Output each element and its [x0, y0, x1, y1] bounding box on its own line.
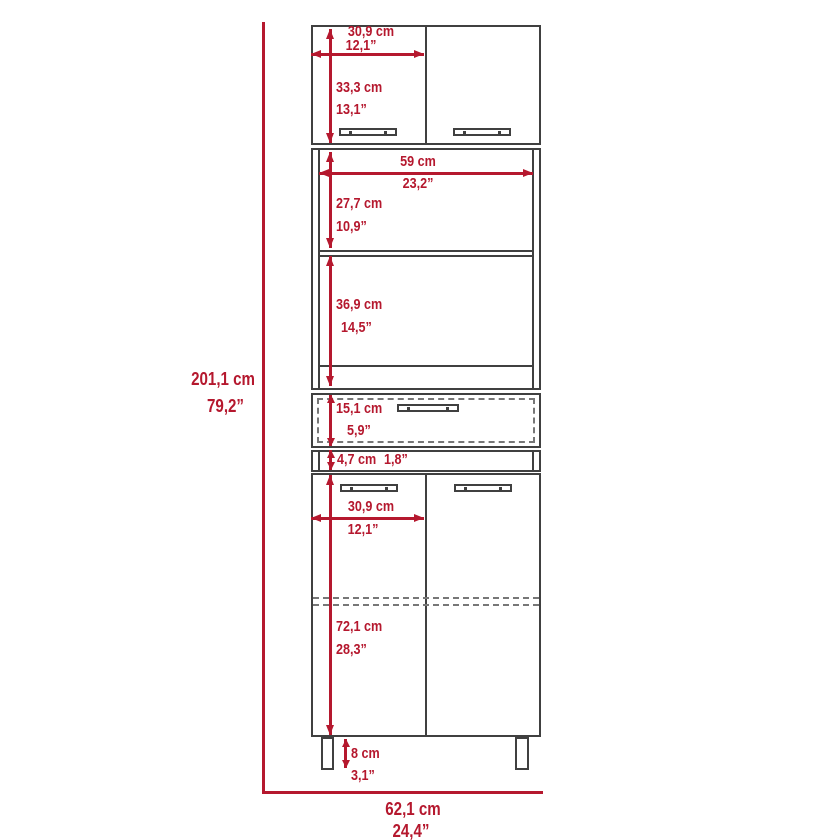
- lower-space-height-arrow: [329, 256, 332, 386]
- hutch-right-panel: [532, 150, 534, 388]
- hutch-shelf: [320, 250, 532, 257]
- leg-height-in: 3,1”: [351, 768, 375, 783]
- upper-space-height-cm: 27,7 cm: [336, 196, 382, 211]
- base-shelf-hidden-line-2: [313, 604, 539, 606]
- spacer-left-panel: [318, 452, 320, 470]
- base-height-arrow: [329, 475, 332, 735]
- spacer-height-arrow: [329, 450, 332, 470]
- overall-height-in: 79,2”: [157, 397, 244, 415]
- overall-height-cm: 201,1 cm: [158, 370, 255, 388]
- overall-width-line: [262, 791, 543, 794]
- upper-space-height-arrow: [329, 152, 332, 248]
- drawer-height-cm: 15,1 cm: [336, 401, 382, 416]
- leg-height-arrow: [344, 739, 347, 768]
- base-height-cm: 72,1 cm: [336, 619, 382, 634]
- base-left-door-handle: [340, 484, 398, 492]
- base-height-in: 28,3”: [336, 642, 367, 657]
- drawer-height-arrow: [329, 395, 332, 446]
- base-door-width-in: 12,1”: [318, 522, 409, 537]
- upper-space-height-in: 10,9”: [336, 219, 367, 234]
- top-cabinet-door-divider: [425, 27, 427, 143]
- drawer-height-in: 5,9”: [347, 423, 371, 438]
- dimension-diagram: 30,9 cm 12,1” 33,3 cm 13,1” 59 cm 23,2” …: [0, 0, 840, 840]
- base-door-width-arrow: [311, 517, 424, 520]
- spacer-right-panel: [532, 452, 534, 470]
- overall-width-cm: 62,1 cm: [368, 800, 459, 818]
- top-right-door-handle: [453, 128, 511, 136]
- hutch-width-cm: 59 cm: [373, 154, 464, 169]
- base-shelf-hidden-line-1: [313, 597, 539, 599]
- spacer-height-in: 1,8”: [384, 452, 408, 467]
- base-door-width-cm: 30,9 cm: [326, 499, 417, 514]
- lower-space-height-cm: 36,9 cm: [336, 297, 382, 312]
- drawer-handle: [397, 404, 459, 412]
- top-cabinet-height-in: 13,1”: [336, 102, 367, 117]
- right-leg: [515, 737, 529, 770]
- spacer-height-cm: 4,7 cm: [337, 452, 376, 467]
- overall-height-line: [262, 22, 265, 794]
- base-right-door-handle: [454, 484, 512, 492]
- overall-width-in: 24,4”: [366, 822, 457, 840]
- top-cabinet-height-cm: 33,3 cm: [336, 80, 382, 95]
- left-leg: [321, 737, 334, 770]
- lower-space-height-in: 14,5”: [341, 320, 372, 335]
- hutch-width-in: 23,2”: [373, 176, 464, 191]
- top-left-door-handle: [339, 128, 397, 136]
- top-door-width-in: 12,1”: [316, 38, 407, 53]
- leg-height-cm: 8 cm: [351, 746, 380, 761]
- hutch-bottom-board: [320, 365, 532, 367]
- hutch-left-panel: [318, 150, 320, 388]
